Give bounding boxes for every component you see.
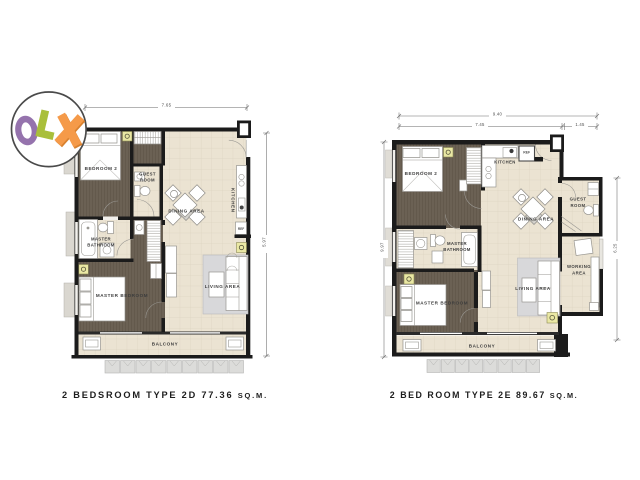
svg-text:BEDROOM 2: BEDROOM 2 [85, 166, 118, 171]
svg-text:AREA: AREA [572, 271, 586, 276]
svg-text:BATHROOM: BATHROOM [443, 247, 471, 252]
svg-text:6.25: 6.25 [613, 243, 618, 253]
svg-text:MASTER BEDROOM: MASTER BEDROOM [96, 293, 148, 298]
svg-text:9.97: 9.97 [380, 242, 385, 252]
svg-text:MASTER BEDROOM: MASTER BEDROOM [416, 301, 468, 306]
svg-text:BEDROOM 2: BEDROOM 2 [405, 171, 438, 176]
svg-text:LIVING AREA: LIVING AREA [515, 286, 551, 291]
svg-text:ROOM: ROOM [571, 203, 586, 208]
svg-text:7.45: 7.45 [475, 122, 485, 127]
svg-text:REF: REF [238, 227, 244, 231]
svg-text:9.40: 9.40 [493, 112, 503, 117]
svg-text:1.45: 1.45 [575, 122, 585, 127]
svg-text:REF: REF [523, 151, 530, 155]
svg-text:2 BED ROOM TYPE 2E 89.67 SQ.M: 2 BED ROOM TYPE 2E 89.67 SQ.M. [390, 390, 578, 400]
svg-text:7.65: 7.65 [162, 103, 172, 108]
svg-text:WORKING: WORKING [567, 264, 591, 269]
svg-text:BATHROOM: BATHROOM [87, 243, 115, 248]
svg-text:MASTER: MASTER [91, 237, 112, 242]
svg-text:ROOM: ROOM [140, 178, 155, 183]
svg-text:DINING AREA: DINING AREA [168, 209, 204, 214]
svg-text:5.97: 5.97 [262, 237, 267, 247]
svg-text:GUEST: GUEST [139, 172, 156, 177]
svg-text:DINING AREA: DINING AREA [518, 217, 554, 222]
svg-text:BALCONY: BALCONY [469, 344, 496, 349]
svg-text:2 BEDSROOM TYPE 2D 77.36 SQ.M.: 2 BEDSROOM TYPE 2D 77.36 SQ.M. [62, 390, 268, 400]
svg-text:GUEST: GUEST [570, 197, 587, 202]
svg-text:BALCONY: BALCONY [152, 342, 179, 347]
svg-text:KITCHEN: KITCHEN [494, 160, 515, 165]
svg-text:KITCHEN: KITCHEN [231, 188, 236, 213]
svg-text:LIVING AREA: LIVING AREA [205, 284, 241, 289]
svg-text:MASTER: MASTER [447, 241, 468, 246]
